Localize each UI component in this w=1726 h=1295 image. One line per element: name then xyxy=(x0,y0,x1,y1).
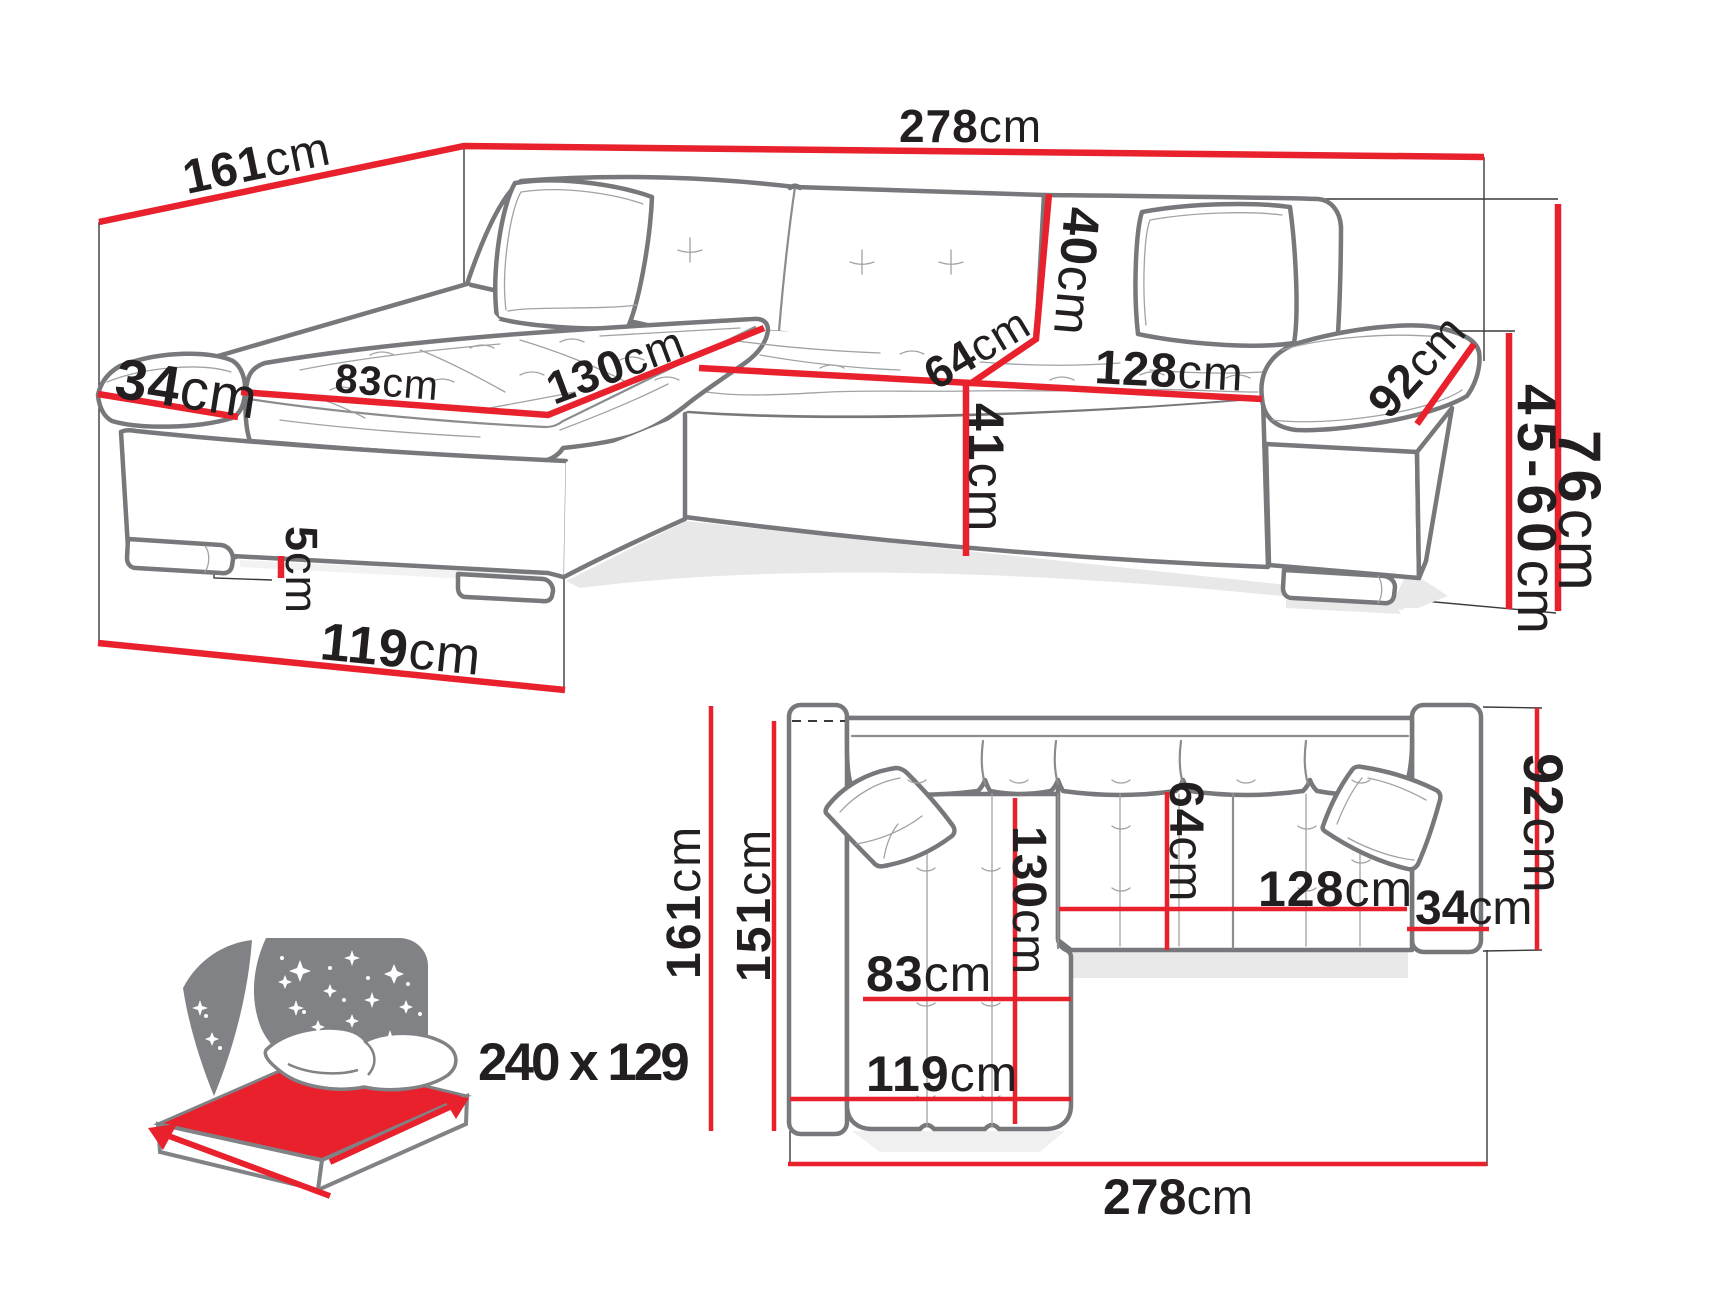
svg-text:130cm: 130cm xyxy=(1002,826,1055,975)
svg-text:240 x 129: 240 x 129 xyxy=(478,1033,688,1092)
svg-text:92cm: 92cm xyxy=(1512,753,1575,894)
svg-text:119cm: 119cm xyxy=(866,1046,1018,1102)
svg-text:119cm: 119cm xyxy=(318,612,484,687)
svg-text:76cm: 76cm xyxy=(1546,430,1613,593)
svg-text:128cm: 128cm xyxy=(1093,341,1245,402)
svg-text:278cm: 278cm xyxy=(1103,1169,1253,1225)
svg-text:151cm: 151cm xyxy=(728,828,781,982)
svg-text:83cm: 83cm xyxy=(866,946,992,1002)
svg-text:40cm: 40cm xyxy=(1043,205,1111,338)
svg-text:161cm: 161cm xyxy=(658,825,711,979)
svg-text:41cm: 41cm xyxy=(958,403,1014,533)
svg-text:83cm: 83cm xyxy=(333,355,441,409)
svg-text:5cm: 5cm xyxy=(276,526,327,614)
svg-text:128cm: 128cm xyxy=(1258,861,1413,917)
svg-text:64cm: 64cm xyxy=(1159,781,1212,902)
svg-text:278cm: 278cm xyxy=(899,100,1042,152)
